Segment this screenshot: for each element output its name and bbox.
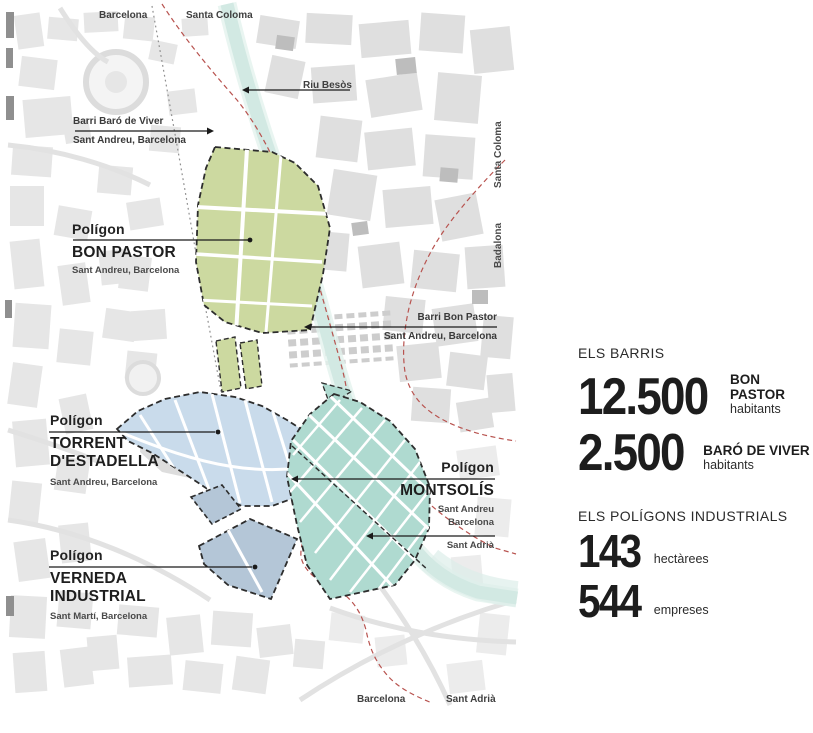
- poligon-district-line3: Sant Adrià: [400, 539, 494, 552]
- edge-label-sant-adria-bottom: Sant Adrià: [446, 693, 496, 706]
- edge-label-santa-coloma-right: Santa Coloma: [492, 121, 505, 188]
- callout-poligon-bon-pastor: Polígon BON PASTOR Sant Andreu, Barcelon…: [72, 221, 179, 277]
- poligon-kicker: Polígon: [50, 547, 147, 563]
- poligon-district-line1: Sant Andreu: [400, 503, 494, 516]
- poligon-name-line2: D'ESTADELLA: [50, 453, 159, 471]
- poligon-kicker: Polígon: [72, 221, 179, 237]
- river-label: Riu Besòs: [303, 79, 352, 92]
- poligon-name: MONTSOLÍS: [400, 482, 494, 500]
- poligon-kicker: Polígon: [400, 459, 494, 475]
- barri-district: Sant Andreu, Barcelona: [384, 330, 497, 343]
- callout-poligon-montsolis: Polígon MONTSOLÍS Sant Andreu Barcelona …: [400, 459, 494, 552]
- stat-unit: habitants: [730, 402, 813, 417]
- stats-heading-poligons: ELS POLÍGONS INDUSTRIALS: [578, 509, 813, 523]
- callout-poligon-torrent-destadella: Polígon TORRENT D'ESTADELLA Sant Andreu,…: [50, 412, 159, 489]
- infographic-canvas: Barcelona Santa Coloma Riu Besòs Santa C…: [0, 0, 813, 733]
- poligon-kicker: Polígon: [50, 412, 159, 428]
- stat-hectarees: 143 hectàrees: [578, 533, 813, 570]
- stats-panel: ELS BARRIS 12.500 BON PASTOR habitants 2…: [578, 346, 813, 634]
- stat-unit: hectàrees: [654, 552, 709, 567]
- barri-name: Barri Baró de Viver: [73, 115, 186, 128]
- stat-unit: habitants: [703, 458, 810, 473]
- poligon-district: Sant Andreu, Barcelona: [50, 476, 159, 489]
- stats-heading-barris: ELS BARRIS: [578, 346, 813, 360]
- poligon-name-line1: TORRENT: [50, 435, 159, 453]
- stat-unit: empreses: [654, 603, 709, 618]
- barri-district: Sant Andreu, Barcelona: [73, 134, 186, 147]
- poligon-district: Sant Andreu, Barcelona: [72, 264, 179, 277]
- stat-baro-de-viver-habitants: 2.500 BARÓ DE VIVER habitants: [578, 433, 813, 475]
- edge-label-barcelona-bottom: Barcelona: [357, 693, 405, 706]
- callout-barri-bon-pastor: Barri Bon Pastor Sant Andreu, Barcelona: [384, 311, 497, 343]
- callout-poligon-verneda-industrial: Polígon VERNEDA INDUSTRIAL Sant Martí, B…: [50, 547, 147, 623]
- edge-label-badalona-right: Badalona: [492, 223, 505, 268]
- stat-empreses: 544 empreses: [578, 583, 813, 620]
- poligon-district: Sant Martí, Barcelona: [50, 610, 147, 623]
- stat-value: 2.500: [578, 433, 684, 475]
- edge-label-barcelona-top: Barcelona: [99, 9, 147, 22]
- poligon-name: BON PASTOR: [72, 244, 179, 262]
- callout-barri-baro-de-viver: Barri Baró de Viver Sant Andreu, Barcelo…: [73, 115, 186, 147]
- stat-label: BON PASTOR: [730, 372, 813, 402]
- barri-name: Barri Bon Pastor: [384, 311, 497, 324]
- stat-value: 12.500: [578, 377, 707, 419]
- stat-bon-pastor-habitants: 12.500 BON PASTOR habitants: [578, 372, 813, 419]
- stat-label: BARÓ DE VIVER: [703, 443, 810, 458]
- edge-label-santa-coloma-top: Santa Coloma: [186, 9, 253, 22]
- poligon-district-line2: Barcelona: [400, 516, 494, 529]
- poligon-name-line1: VERNEDA: [50, 570, 147, 588]
- stat-value: 143: [578, 533, 640, 570]
- poligon-name-line2: INDUSTRIAL: [50, 588, 147, 606]
- stat-value: 544: [578, 583, 640, 620]
